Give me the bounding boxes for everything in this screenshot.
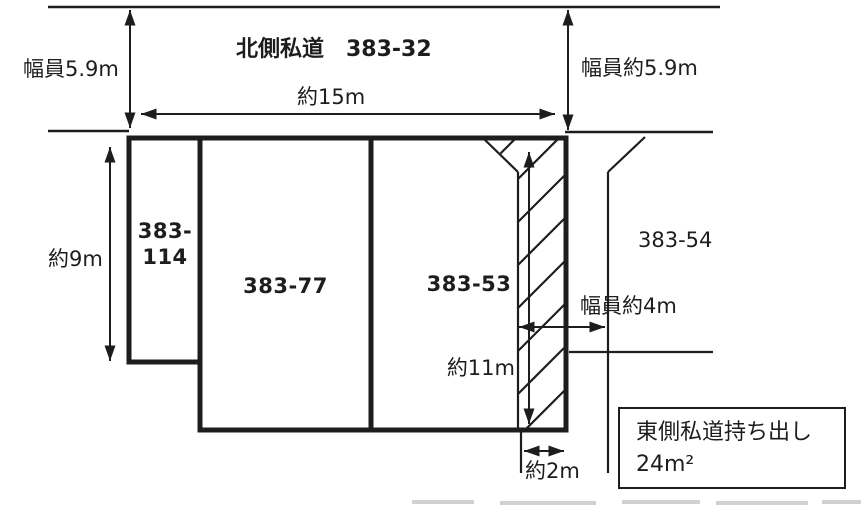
parcel-383-114-label: 383- 114: [131, 218, 199, 270]
road-width-left-label: 幅員5.9m: [23, 57, 119, 82]
east-road-4m-label: 幅員約4m: [580, 294, 677, 319]
frontage-15m-label: 約15m: [297, 85, 365, 110]
road-width-right-label: 幅員約5.9m: [581, 56, 698, 81]
east-road-note-box: 東側私道持ち出し 24m²: [618, 407, 846, 489]
depth-9m-label: 約9m: [48, 247, 103, 272]
north-road-title: 北側私道 383-32: [236, 37, 432, 63]
scan-noise: [412, 500, 861, 505]
parcel-383-53-label: 383-53: [371, 272, 567, 297]
strip-2m-label: 約2m: [525, 459, 580, 484]
parcel-383-77-label: 383-77: [200, 274, 371, 299]
strip-11m-label: 約11m: [430, 356, 515, 381]
note-line1: 東側私道持ち出し: [636, 417, 844, 449]
note-line2: 24m²: [636, 449, 844, 481]
parcel-383-54-label: 383-54: [638, 228, 712, 253]
parcel-383-114-line2: 114: [142, 245, 187, 269]
land-plot-diagram: 北側私道 383-32 幅員5.9m 幅員約5.9m 約15m 約9m 383-…: [0, 0, 861, 505]
east-road-strip-boundary: [484, 139, 521, 473]
parcel-383-114-line1: 383-: [138, 219, 193, 243]
